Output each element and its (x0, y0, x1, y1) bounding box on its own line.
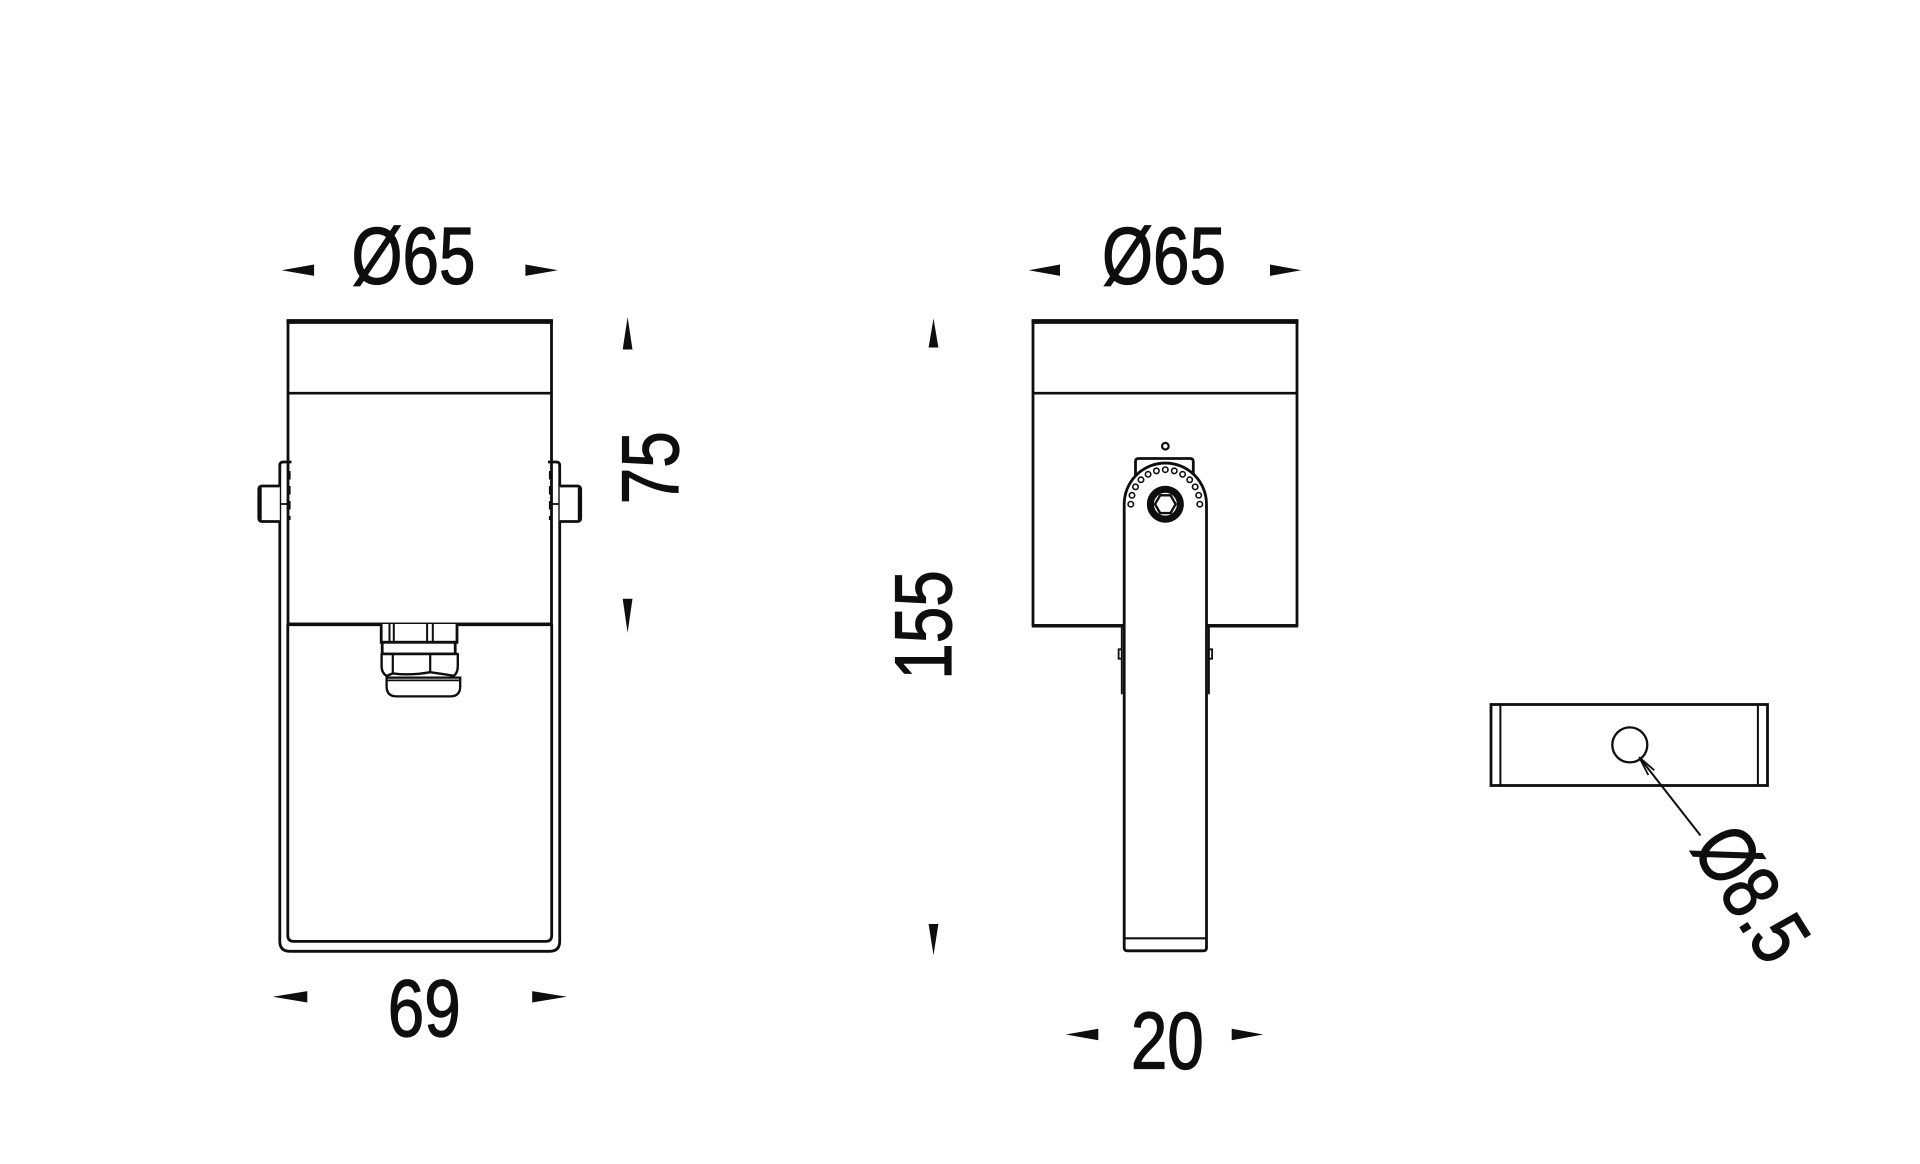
svg-text:Ø65: Ø65 (1102, 210, 1226, 301)
svg-text:75: 75 (605, 431, 696, 504)
svg-text:69: 69 (388, 962, 461, 1053)
svg-text:155: 155 (877, 570, 968, 679)
svg-text:20: 20 (1131, 995, 1204, 1086)
svg-text:Ø65: Ø65 (352, 210, 476, 301)
